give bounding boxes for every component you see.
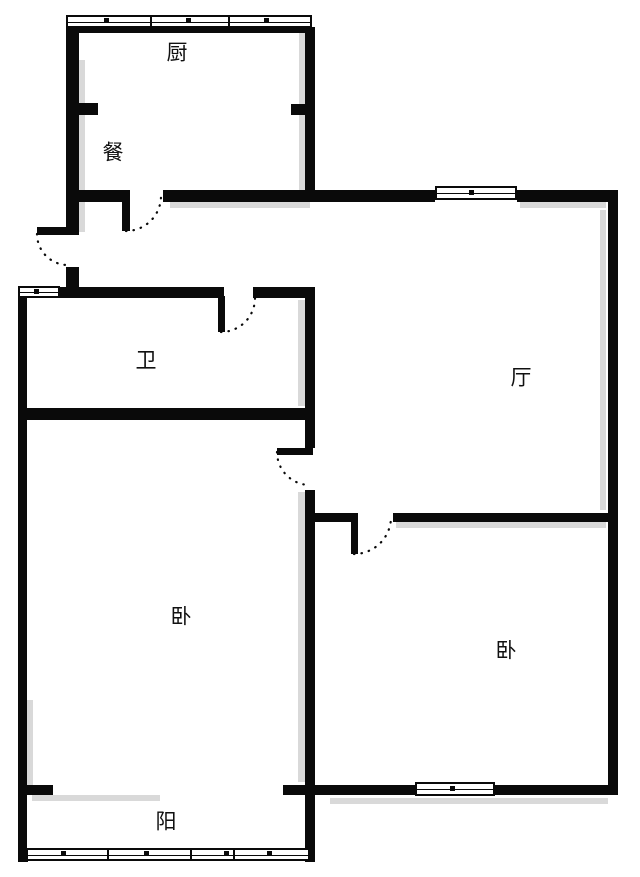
living-top-wall-left	[163, 190, 435, 202]
bedroom2-window	[415, 782, 495, 796]
bathroom-window	[18, 286, 60, 298]
balcony-window	[26, 848, 310, 861]
bathroom-door-arc	[221, 298, 255, 332]
dining-door-leaf	[122, 190, 130, 231]
bathroom-door-leaf	[218, 296, 225, 332]
shadow-bedroom2-top	[396, 522, 606, 528]
bedroom2-top-wall-left	[315, 513, 352, 522]
room-label-dining: 餐	[103, 143, 124, 164]
shadow-living-top	[520, 202, 606, 208]
kitchen-left-wall	[66, 16, 79, 235]
bedroom2-door-leaf	[351, 513, 358, 554]
bottom-wall-left-of-window	[283, 785, 415, 795]
room-label-living: 厅	[511, 368, 532, 389]
kitchen-divider-tab-left	[79, 103, 98, 115]
room-label-bedroom-right: 卧	[496, 641, 517, 662]
bathroom-bottom-wall	[18, 408, 315, 420]
shadow-balcony-left	[27, 700, 33, 786]
left-outer-wall	[18, 287, 27, 862]
bedroom1-door-leaf	[277, 448, 313, 455]
central-wall-upper	[305, 292, 315, 448]
shadow-balcony-divider	[32, 795, 160, 801]
entry-door-leaf	[37, 227, 72, 235]
bedroom1-door-arc	[277, 452, 310, 485]
entry-door-arc	[37, 234, 68, 265]
room-label-bathroom: 卫	[136, 351, 157, 372]
floor-plan: 厨 餐 卫 厅 卧 卧 阳	[0, 0, 640, 877]
bottom-wall-right-of-window	[495, 785, 618, 795]
room-label-balcony: 阳	[156, 812, 177, 833]
shadow-hall-top	[170, 202, 310, 208]
door-arcs	[0, 0, 640, 877]
living-top-wall-right	[517, 190, 618, 202]
shadow-bedroom2-bottom	[330, 798, 608, 804]
shadow-kitchen-left	[79, 60, 85, 232]
dining-bottom-wall	[66, 190, 122, 202]
dining-door-arc	[126, 196, 161, 231]
living-window	[435, 186, 517, 200]
kitchen-divider-tab-right	[291, 104, 305, 115]
room-label-bedroom-left: 卧	[171, 607, 192, 628]
central-wall-lower	[305, 490, 315, 862]
shadow-living-right	[600, 210, 606, 510]
bedroom2-door-arc	[354, 517, 391, 554]
shadow-bath-right	[298, 300, 305, 406]
bedroom2-top-wall-right	[393, 513, 618, 522]
kitchen-window	[66, 15, 312, 28]
bathroom-top-wall-left	[58, 287, 224, 298]
room-label-kitchen: 厨	[167, 43, 188, 64]
kitchen-right-wall	[305, 27, 315, 202]
shadow-bedroom1-right	[298, 492, 305, 782]
right-outer-wall	[608, 190, 618, 795]
balcony-divider-left-stub	[18, 785, 53, 795]
